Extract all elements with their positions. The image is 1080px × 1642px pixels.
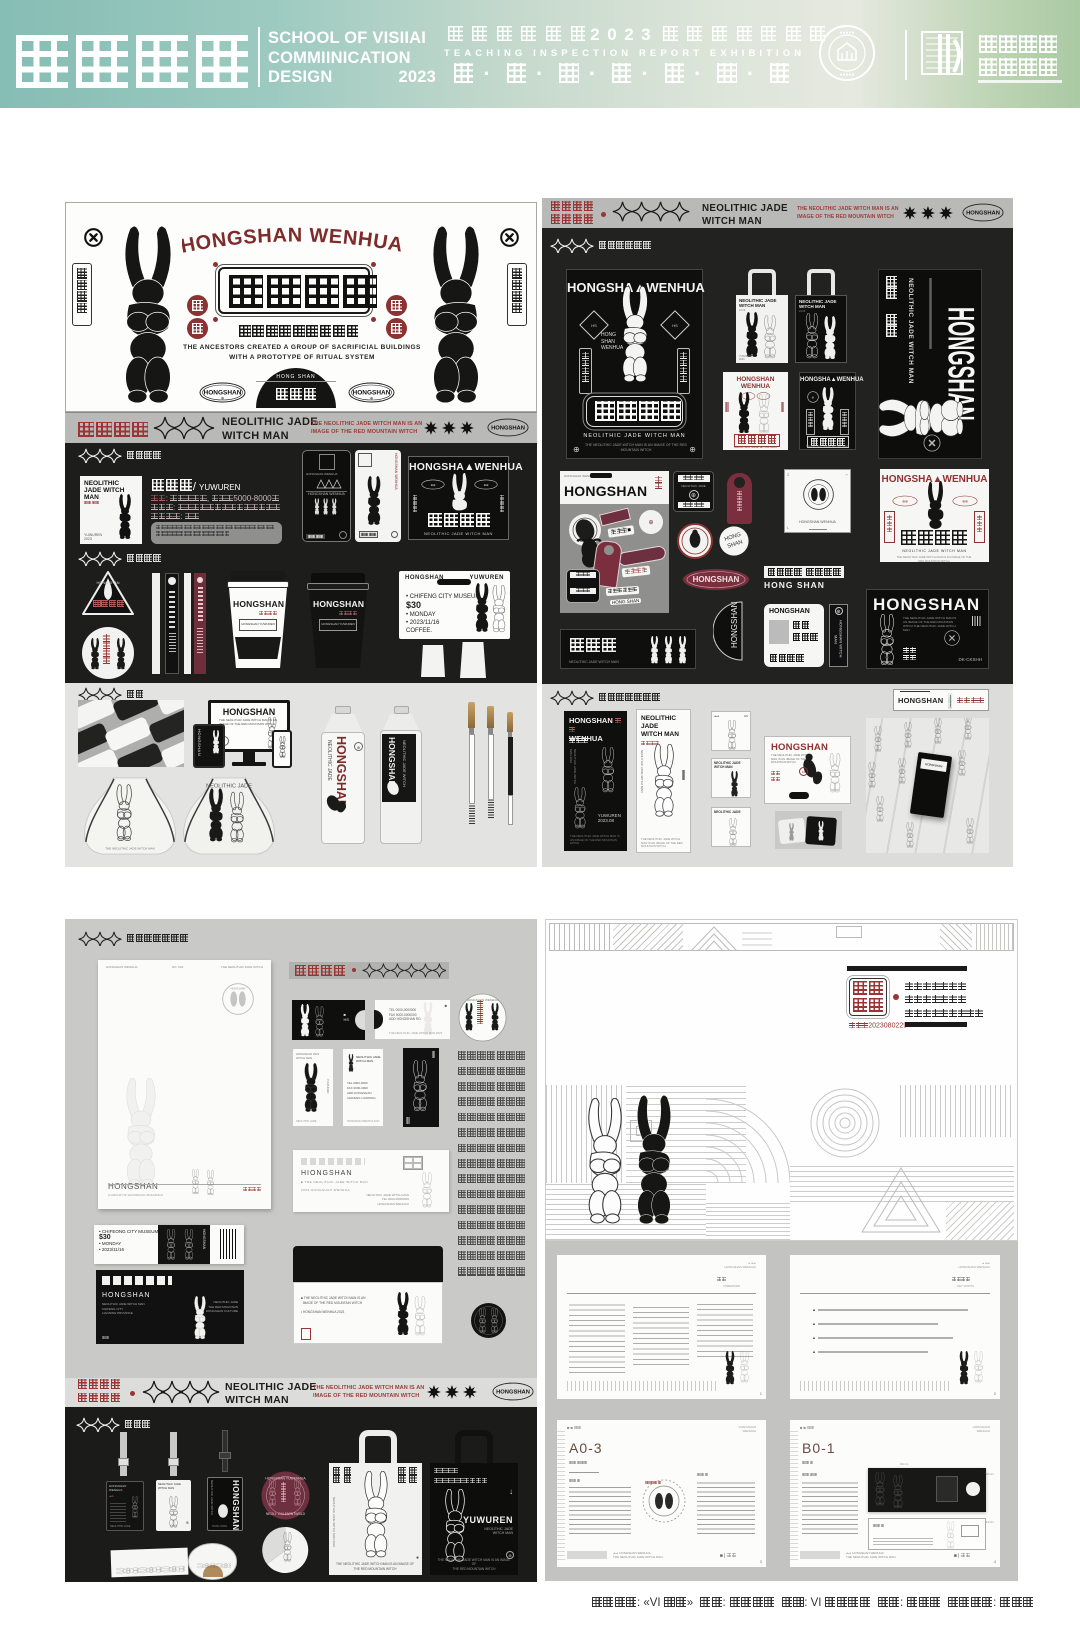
svg-text:HS: HS	[591, 323, 597, 328]
svg-text:HONGSHAN: HONGSHAN	[96, 580, 119, 585]
svg-text:HS: HS	[672, 323, 678, 328]
svg-text:HONGSHAN: HONGSHAN	[231, 987, 246, 991]
svg-text:●●●●●: ●●●●●	[839, 72, 854, 78]
svg-text:⊕⊕: ⊕⊕	[484, 483, 489, 487]
svg-text:⊕⊕: ⊕⊕	[431, 483, 436, 487]
svg-text:HONGSHAN WENHUA: HONGSHAN WENHUA	[182, 224, 405, 257]
svg-text:HONGSHAN: HONGSHAN	[693, 575, 740, 584]
svg-text:NEOLITHIC JADE: NEOLITHIC JADE	[206, 783, 252, 789]
svg-text:NEOLI· CALMWNTWSLD: NEOLI· CALMWNTWSLD	[266, 1512, 306, 1516]
svg-text:●●●●●: ●●●●●	[839, 30, 854, 36]
svg-text:HONGSHAN: HONGSHAN	[496, 1389, 530, 1395]
svg-text:⊕: ⊕	[221, 396, 224, 401]
svg-text:THE NEOLITHIC JADE WITCH MAN: THE NEOLITHIC JADE WITCH MAN	[105, 846, 155, 850]
svg-text:⊕⊕: ⊕⊕	[962, 499, 968, 503]
svg-text:⊕: ⊕	[648, 520, 653, 526]
svg-text:HONGSHAN: HONGSHAN	[491, 425, 525, 431]
svg-text:HONGSHAN: HONGSHAN	[966, 210, 1000, 216]
svg-text:⊕: ⊕	[370, 396, 373, 401]
svg-text:HONGSHAN: HONGSHAN	[730, 602, 739, 648]
svg-text:⊕: ⊕	[812, 396, 815, 400]
svg-text:⊕⊕: ⊕⊕	[902, 499, 908, 503]
